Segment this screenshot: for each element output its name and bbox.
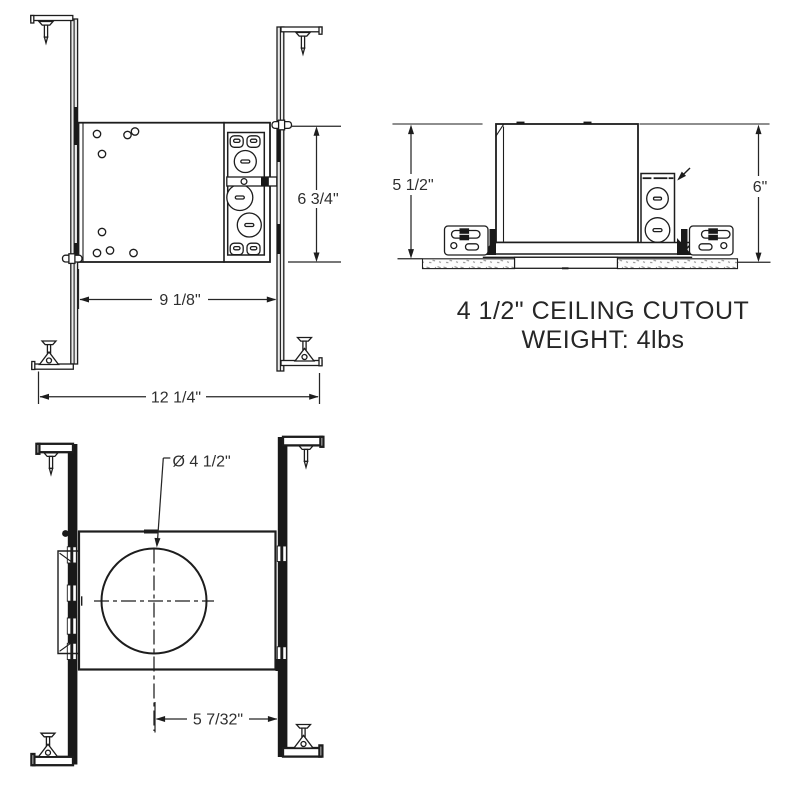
top-tab (584, 122, 592, 125)
arrowhead (314, 126, 320, 136)
arrowhead (314, 253, 320, 263)
hanger-bar-segment (74, 107, 77, 145)
foot-lip (319, 358, 322, 366)
hole (93, 249, 100, 256)
dimension-label: 6" (753, 179, 768, 196)
bar-tab (73, 585, 77, 601)
bolt-nut (279, 120, 285, 130)
hole (98, 228, 105, 235)
dimension-front-width: 9 1/8" (79, 269, 277, 309)
nail (296, 33, 310, 55)
mounting-foot-bottom-left (32, 341, 74, 370)
foot-lip (32, 362, 35, 370)
hanger-bar-left (67, 444, 77, 765)
side-view: 5 1/2" 6" 4 1/2" CEILING CUTOUT WEIGHT: … (392, 122, 770, 354)
hole (98, 150, 105, 157)
nail (39, 733, 58, 757)
hole (93, 130, 100, 137)
dimension-label: 9 1/8" (159, 292, 200, 309)
bolt-nut (69, 254, 75, 264)
dimension-front-height: 6 3/4" (288, 126, 341, 262)
knockout-slot (241, 160, 250, 163)
hanger-bar-right (277, 437, 287, 757)
hole (106, 247, 113, 254)
knockout-slot (235, 196, 244, 199)
nail (299, 446, 313, 468)
foot-plate (281, 27, 322, 32)
bracket-hole (721, 243, 727, 249)
dimension-label: 5 7/32" (193, 712, 243, 729)
knockout-slot (653, 229, 662, 232)
technical-drawing-sheet: 6 3/4" 9 1/8" 12 1/4" (0, 0, 806, 808)
caption-line2: WEIGHT: 4lbs (522, 326, 685, 354)
mounting-foot-bottom-right (281, 338, 322, 366)
bar-tab (67, 585, 71, 601)
dimension-label: Ø 4 1/2" (173, 454, 231, 471)
knockout-slot (234, 139, 240, 142)
bottom-view: Ø 4 1/2" 5 7/32" (31, 437, 323, 765)
dimension-label: 6 3/4" (297, 191, 338, 208)
foot-lip (320, 437, 323, 447)
top-tab (517, 122, 525, 125)
bar-tab (73, 618, 77, 634)
arrowhead (756, 125, 762, 135)
arrowhead (156, 716, 166, 722)
foot-plate (283, 437, 322, 446)
foot-lip (36, 444, 39, 454)
arrowhead (80, 297, 90, 303)
bracket-hardware (490, 229, 497, 255)
trim-ring (515, 257, 618, 268)
dimension-front-overall-width: 12 1/4" (39, 372, 320, 407)
foot-plate (283, 748, 321, 757)
arrowhead (756, 253, 762, 263)
arrowhead (268, 716, 278, 722)
dimension-label: 5 1/2" (392, 177, 433, 194)
bracket-hardware (681, 229, 688, 255)
dimension-side-height: 5 1/2" (392, 125, 433, 259)
foot-lip (31, 754, 34, 765)
housing-outline (496, 124, 638, 243)
knockout-slot (234, 247, 240, 250)
knockout-slot (245, 224, 254, 227)
nail (295, 338, 314, 362)
plate-corner-clip (276, 659, 288, 671)
caption: 4 1/2" CEILING CUTOUT WEIGHT: 4lbs (457, 297, 750, 354)
foot-plate (31, 16, 73, 21)
bracket-hole (451, 243, 457, 249)
bar-tab (277, 546, 281, 562)
rivet (62, 530, 69, 537)
knockout-slot (250, 247, 256, 250)
bar-tab (73, 643, 77, 659)
knockout-slot (654, 197, 662, 200)
cable-clamp (227, 177, 277, 186)
hanger-bar-left (71, 19, 78, 364)
bar-tab (67, 618, 71, 634)
nail (40, 341, 59, 365)
nail (39, 22, 53, 44)
mounting-foot-top-right (281, 27, 322, 54)
mounting-foot-top-right (283, 437, 323, 468)
foot-lip (319, 27, 322, 34)
hanger-bar-right (277, 27, 284, 371)
bracket-slot2 (699, 244, 712, 250)
front-view: 6 3/4" 9 1/8" 12 1/4" (31, 16, 341, 407)
bar-bolt-top-right (272, 120, 292, 130)
arrowhead (408, 249, 414, 259)
arrowhead (408, 125, 414, 135)
clamp-screw (241, 179, 247, 185)
nail (44, 453, 58, 475)
hole (131, 128, 138, 135)
nail (294, 725, 313, 749)
foot-lip (31, 16, 34, 24)
foot-plate (38, 444, 73, 452)
hanger-bar-rail (278, 437, 288, 757)
hole (130, 249, 137, 256)
caption-line1: 4 1/2" CEILING CUTOUT (457, 297, 750, 325)
foot-plate (33, 757, 73, 765)
mounting-foot-top-left (31, 16, 73, 44)
drawing-canvas: 6 3/4" 9 1/8" 12 1/4" (0, 0, 806, 808)
bar-bolt-bottom-left (63, 254, 83, 264)
bar-tab (283, 546, 287, 562)
hanger-bar-segment (277, 224, 280, 254)
mounting-foot-bottom-left (31, 733, 73, 765)
hanger-bar-rail (68, 444, 78, 765)
plaster-plate (58, 530, 287, 731)
mounting-foot-top-left (36, 444, 73, 475)
arrowhead (40, 394, 50, 400)
clamp-bar (227, 177, 277, 186)
clamp-block (261, 177, 268, 186)
dimension-bottom-offset: 5 7/32" (155, 702, 277, 733)
knockout-slot (250, 139, 256, 142)
arrowhead (309, 394, 319, 400)
mounting-bracket-right (677, 226, 733, 255)
mounting-foot-bottom-right (283, 725, 322, 757)
bracket-slot2 (466, 244, 479, 250)
hole (124, 131, 131, 138)
dimension-side-overall-height: 6" (738, 125, 771, 263)
ceiling-right (618, 259, 738, 269)
ceiling-left (423, 259, 515, 269)
dimension-label: 12 1/4" (151, 390, 201, 407)
mounting-bracket-left (445, 226, 497, 255)
flange (484, 243, 693, 255)
arrowhead (267, 297, 277, 303)
foot-lip (319, 745, 322, 756)
bar-tab (73, 547, 77, 563)
